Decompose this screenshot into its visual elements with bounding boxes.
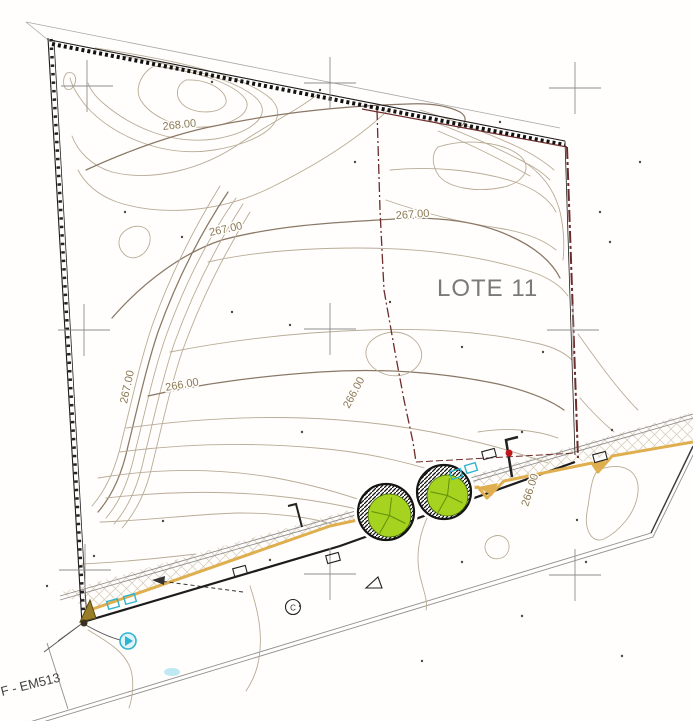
reference-marker-label: F - EM513 [0, 670, 62, 699]
survey-point [93, 555, 95, 557]
survey-point [354, 161, 356, 163]
contour-linework [64, 48, 639, 708]
road-band [0, 412, 693, 721]
contour-elevation-label: 266.00 [164, 376, 199, 394]
lot-division-centerline [377, 110, 416, 462]
crosshair [549, 62, 601, 114]
trees [354, 461, 475, 544]
circled-letter: C [290, 604, 296, 613]
utility-box [326, 552, 341, 563]
survey-point [461, 561, 463, 563]
crosshair [549, 549, 601, 601]
site-plan-canvas: C 268.00267.00267.00267.00266.00266.0026… [0, 0, 693, 721]
boundary-east [567, 147, 578, 458]
lot-title: LOTE 11 [437, 275, 538, 302]
survey-point [421, 660, 423, 662]
survey-point [124, 211, 126, 213]
survey-point [389, 301, 391, 303]
survey-point [576, 519, 578, 521]
boundary-west-hatch [51, 39, 84, 623]
survey-point [289, 324, 291, 326]
survey-point [162, 520, 164, 522]
tree-symbol [354, 480, 418, 544]
survey-point [521, 431, 523, 433]
survey-point [461, 346, 463, 348]
survey-point [639, 161, 641, 163]
utility-pole-symbol [120, 633, 136, 649]
survey-point [499, 121, 501, 123]
highlight-smudge [164, 668, 180, 676]
crosshair [61, 60, 113, 112]
contour-elevation-label: 267.00 [118, 369, 137, 404]
boundary-red-north [362, 109, 567, 147]
survey-point [211, 81, 213, 83]
side-street-edge [651, 446, 693, 533]
survey-point [585, 561, 587, 563]
crosshair [547, 304, 599, 356]
boundary-south [83, 462, 575, 622]
crosshair [304, 548, 356, 600]
circled-letter-symbol: C [286, 600, 301, 615]
survey-point [231, 311, 233, 313]
survey-point [609, 241, 611, 243]
survey-point [299, 605, 301, 607]
utility-box [482, 448, 497, 459]
survey-point [269, 559, 271, 561]
survey-point [46, 585, 48, 587]
survey-point [621, 655, 623, 657]
utility-box-cyan [465, 463, 478, 474]
boundary-north-hatch [52, 44, 565, 145]
red-marker-dot [506, 450, 513, 457]
survey-point [599, 211, 601, 213]
boundary-west [48, 38, 82, 624]
survey-point [319, 89, 321, 91]
site-plan-viewport: C 268.00267.00267.00267.00266.00266.0026… [0, 0, 693, 721]
survey-point [301, 431, 303, 433]
triangle-symbol [366, 577, 382, 588]
survey-point [521, 615, 523, 617]
crosshair [304, 303, 356, 355]
contour-elevation-label: 267.00 [395, 208, 429, 222]
boundary-north [50, 40, 565, 141]
survey-point [542, 351, 544, 353]
survey-point [181, 236, 183, 238]
survey-point [611, 429, 613, 431]
contour-elevation-label: 266.00 [341, 375, 367, 410]
